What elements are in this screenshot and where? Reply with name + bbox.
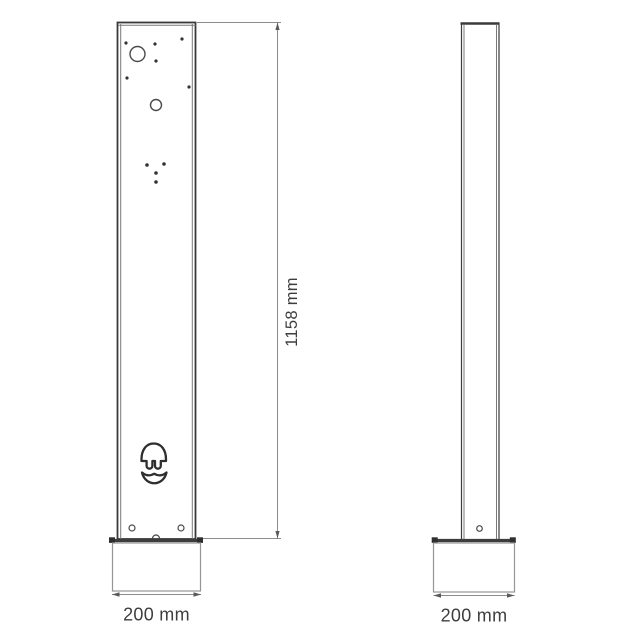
arrowhead-left <box>434 593 442 597</box>
plug-head-with-pins <box>142 444 167 469</box>
front-foundation-box <box>113 543 201 591</box>
side-view: 200 mm <box>432 23 516 626</box>
front-width-dimension: 200 mm <box>112 592 201 624</box>
hole-dot <box>125 76 128 79</box>
medium-mounting-hole <box>151 100 162 111</box>
hole-dot <box>162 162 166 166</box>
arrowhead-right <box>507 593 515 597</box>
hole-dot <box>154 180 158 184</box>
arrowhead-left <box>112 592 120 596</box>
cable-notch <box>153 535 160 539</box>
base-plate-end-tick <box>432 537 438 543</box>
arrowhead-right <box>194 592 202 596</box>
side-column-outline <box>461 23 500 539</box>
base-plate-end-tick <box>510 537 516 543</box>
hole-dot <box>154 59 157 62</box>
front-base-width-label: 200 mm <box>123 605 190 625</box>
side-base-plate <box>432 537 516 543</box>
arrowhead-down <box>275 531 279 539</box>
base-fixing-hole <box>129 525 135 531</box>
hole-dot <box>180 37 183 40</box>
hole-dot <box>153 42 156 45</box>
side-base-fixing-hole <box>477 526 483 532</box>
base-plate-end-tick <box>197 537 203 543</box>
socket-bowl <box>142 473 167 484</box>
front-panel-holes <box>124 37 190 183</box>
hole-dot <box>145 163 149 167</box>
technical-drawing: 200 mm 1158 mm 200 mm <box>0 0 640 640</box>
large-mounting-hole <box>130 47 145 62</box>
hole-dot <box>187 85 190 88</box>
side-width-dimension: 200 mm <box>434 593 515 625</box>
height-label: 1158 mm <box>283 277 301 347</box>
hole-dot <box>154 171 158 175</box>
hole-dot <box>124 41 127 44</box>
front-view: 200 mm <box>109 23 203 625</box>
base-fixing-hole <box>178 525 184 531</box>
height-dimension: 1158 mm <box>197 23 301 539</box>
front-bottom-holes <box>129 525 184 539</box>
arrowhead-up <box>275 23 279 31</box>
base-plate-end-tick <box>109 537 115 543</box>
ev-plug-icon <box>142 444 167 484</box>
side-base-width-label: 200 mm <box>441 606 508 626</box>
side-foundation-box <box>434 543 515 592</box>
drawing-canvas: 200 mm 1158 mm 200 mm <box>0 0 640 640</box>
